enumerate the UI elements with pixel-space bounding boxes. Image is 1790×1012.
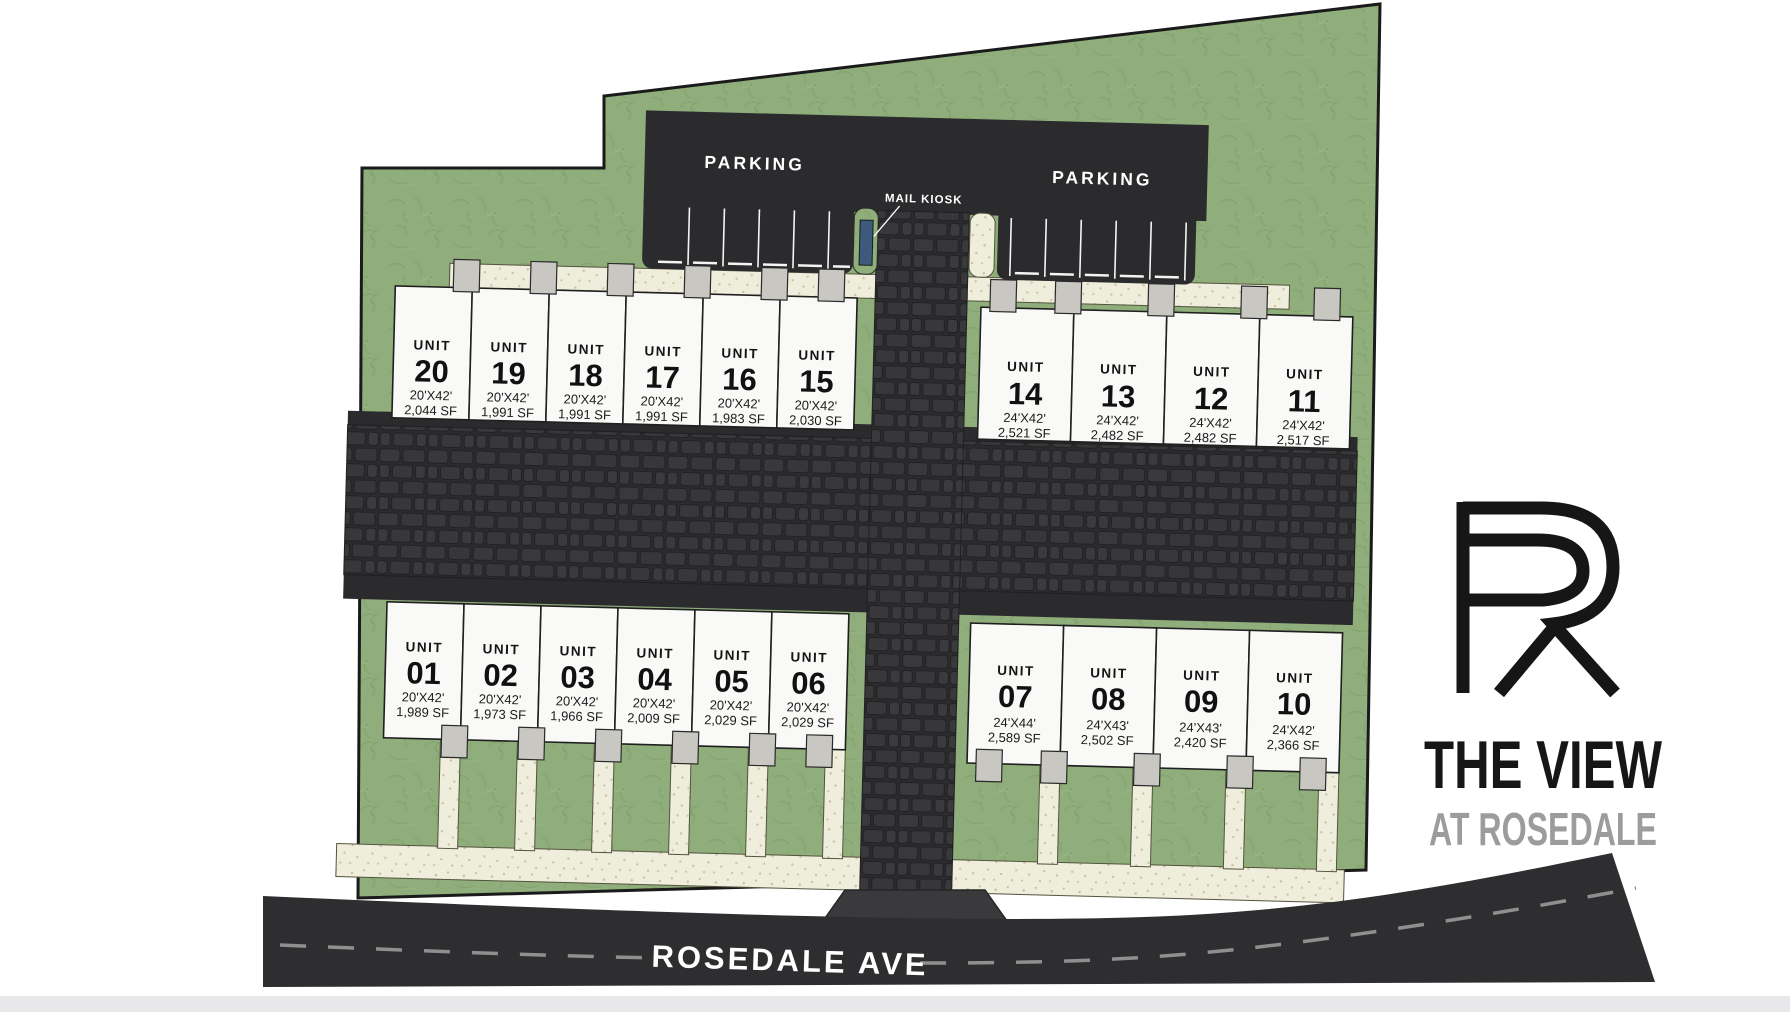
unit-number: 09 [1184,684,1219,720]
unit-area: 2,502 SF [1081,732,1134,748]
logo-line2: AT ROSEDALE [1429,803,1657,855]
walkway-slot [969,213,996,278]
unit-dimensions: 24'X42' [1189,415,1232,431]
unit-word: UNIT [405,639,443,655]
porch-stoop [684,265,711,298]
porch-stoop [749,733,776,766]
unit-word: UNIT [490,339,528,355]
porch-stoop [453,259,480,292]
unit-dimensions: 20'X42' [717,395,760,411]
unit-number: 07 [998,679,1033,715]
unit-word: UNIT [1276,670,1314,686]
porch-stoop [990,279,1017,312]
unit-area: 1,991 SF [481,404,534,420]
unit-word: UNIT [1007,359,1045,375]
unit-word: UNIT [1100,361,1138,377]
unit-dimensions: 20'X42' [402,689,445,705]
porch-stoop [530,261,557,294]
unit-word: UNIT [636,645,674,661]
porch-stoop [441,725,468,758]
unit-word: UNIT [1286,366,1324,382]
bottom-gray-strip [0,996,1790,1012]
unit-area: 2,030 SF [789,412,842,428]
site-plan-svg: PARKING PARKING MAIL KIOSK UNIT2020'X42'… [0,0,1790,1012]
porch-stoop [806,735,833,768]
unit-number: 03 [560,659,595,695]
unit-word: UNIT [1090,665,1128,681]
unit-word: UNIT [790,649,828,665]
unit-word: UNIT [713,647,751,663]
unit-area: 1,966 SF [550,708,603,724]
unit-number: 04 [637,661,673,697]
unit-dimensions: 20'X42' [563,391,606,407]
porch-stoop [1133,753,1160,786]
parking-label-right: PARKING [1052,167,1153,190]
unit-number: 06 [791,665,826,701]
unit-dimensions: 24'X44' [993,715,1036,731]
porch-stoop [1041,751,1068,784]
logo-line1: THE VIEW [1424,727,1663,803]
unit-word: UNIT [1193,364,1231,380]
unit-dimensions: 24'X42' [1282,417,1325,433]
unit-number: 05 [714,663,749,699]
site-plan-page: PARKING PARKING MAIL KIOSK UNIT2020'X42'… [0,0,1790,1012]
unit-area: 1,991 SF [558,406,611,422]
unit-area: 2,482 SF [1091,427,1144,443]
unit-area: 2,521 SF [998,425,1051,441]
unit-word: UNIT [1183,668,1221,684]
unit-area: 2,420 SF [1174,734,1227,750]
unit-area: 1,973 SF [473,706,526,722]
unit-number: 17 [645,359,680,395]
porch-stoop [976,749,1003,782]
unit-number: 02 [483,657,518,693]
unit-word: UNIT [721,345,759,361]
unit-number: 01 [406,655,441,691]
porch-stoop [595,729,622,762]
unit-number: 13 [1100,378,1135,414]
unit-area: 2,482 SF [1184,430,1237,446]
rosedale-monogram-r-icon [1463,502,1615,693]
porch-stoop [1314,288,1341,321]
porch-stoop [761,267,788,300]
unit-area: 2,029 SF [704,712,757,728]
unit-number: 19 [491,355,526,391]
unit-number: 12 [1193,381,1228,417]
unit-number: 18 [568,357,603,393]
porch-stoop [1226,756,1253,789]
porch-stoop [672,731,699,764]
porch-stoop [607,263,634,296]
unit-dimensions: 20'X42' [786,699,829,715]
porch-stoop [518,727,545,760]
mail-kiosk-box [859,220,873,265]
unit-dimensions: 24'X43' [1086,717,1129,733]
unit-number: 16 [722,361,757,397]
unit-area: 2,589 SF [988,730,1041,746]
porch-stoop [1148,284,1175,317]
unit-area: 2,044 SF [404,402,457,418]
unit-number: 20 [414,353,449,389]
porch-stoop [818,269,845,302]
unit-dimensions: 20'X42' [409,387,452,403]
unit-word: UNIT [997,663,1035,679]
unit-word: UNIT [798,347,836,363]
unit-dimensions: 24'X43' [1179,720,1222,736]
mail-kiosk-label: MAIL KIOSK [885,193,963,207]
unit-area: 2,517 SF [1277,432,1330,448]
unit-dimensions: 24'X42' [1003,410,1046,426]
unit-area: 2,009 SF [627,710,680,726]
unit-dimensions: 24'X42' [1096,412,1139,428]
unit-area: 2,029 SF [781,714,834,730]
unit-area: 1,989 SF [396,704,449,720]
unit-number: 08 [1091,681,1126,717]
unit-number: 11 [1287,383,1321,419]
brand-logo: THE VIEW AT ROSEDALE [1424,502,1663,855]
unit-number: 10 [1276,686,1311,722]
unit-number: 14 [1008,376,1044,412]
unit-dimensions: 24'X42' [1272,722,1315,738]
unit-area: 2,366 SF [1267,737,1320,753]
unit-dimensions: 20'X42' [479,691,522,707]
unit-word: UNIT [567,341,605,357]
porch-stoop [1299,758,1326,791]
parking-label-left: PARKING [704,152,805,175]
unit-block-top-left: UNIT2020'X42'2,044 SFUNIT1920'X42'1,991 … [392,258,858,430]
unit-dimensions: 20'X42' [486,389,529,405]
porch-stoop [1241,286,1268,319]
unit-area: 1,983 SF [712,410,765,426]
unit-word: UNIT [482,641,520,657]
unit-dimensions: 20'X42' [633,695,676,711]
unit-dimensions: 20'X42' [709,697,752,713]
unit-area: 1,991 SF [635,408,688,424]
unit-dimensions: 20'X42' [556,693,599,709]
unit-dimensions: 20'X42' [794,397,837,413]
unit-number: 15 [799,363,834,399]
unit-word: UNIT [559,643,597,659]
unit-dimensions: 20'X42' [640,393,683,409]
unit-word: UNIT [413,337,451,353]
unit-word: UNIT [644,343,682,359]
porch-stoop [1055,281,1082,314]
